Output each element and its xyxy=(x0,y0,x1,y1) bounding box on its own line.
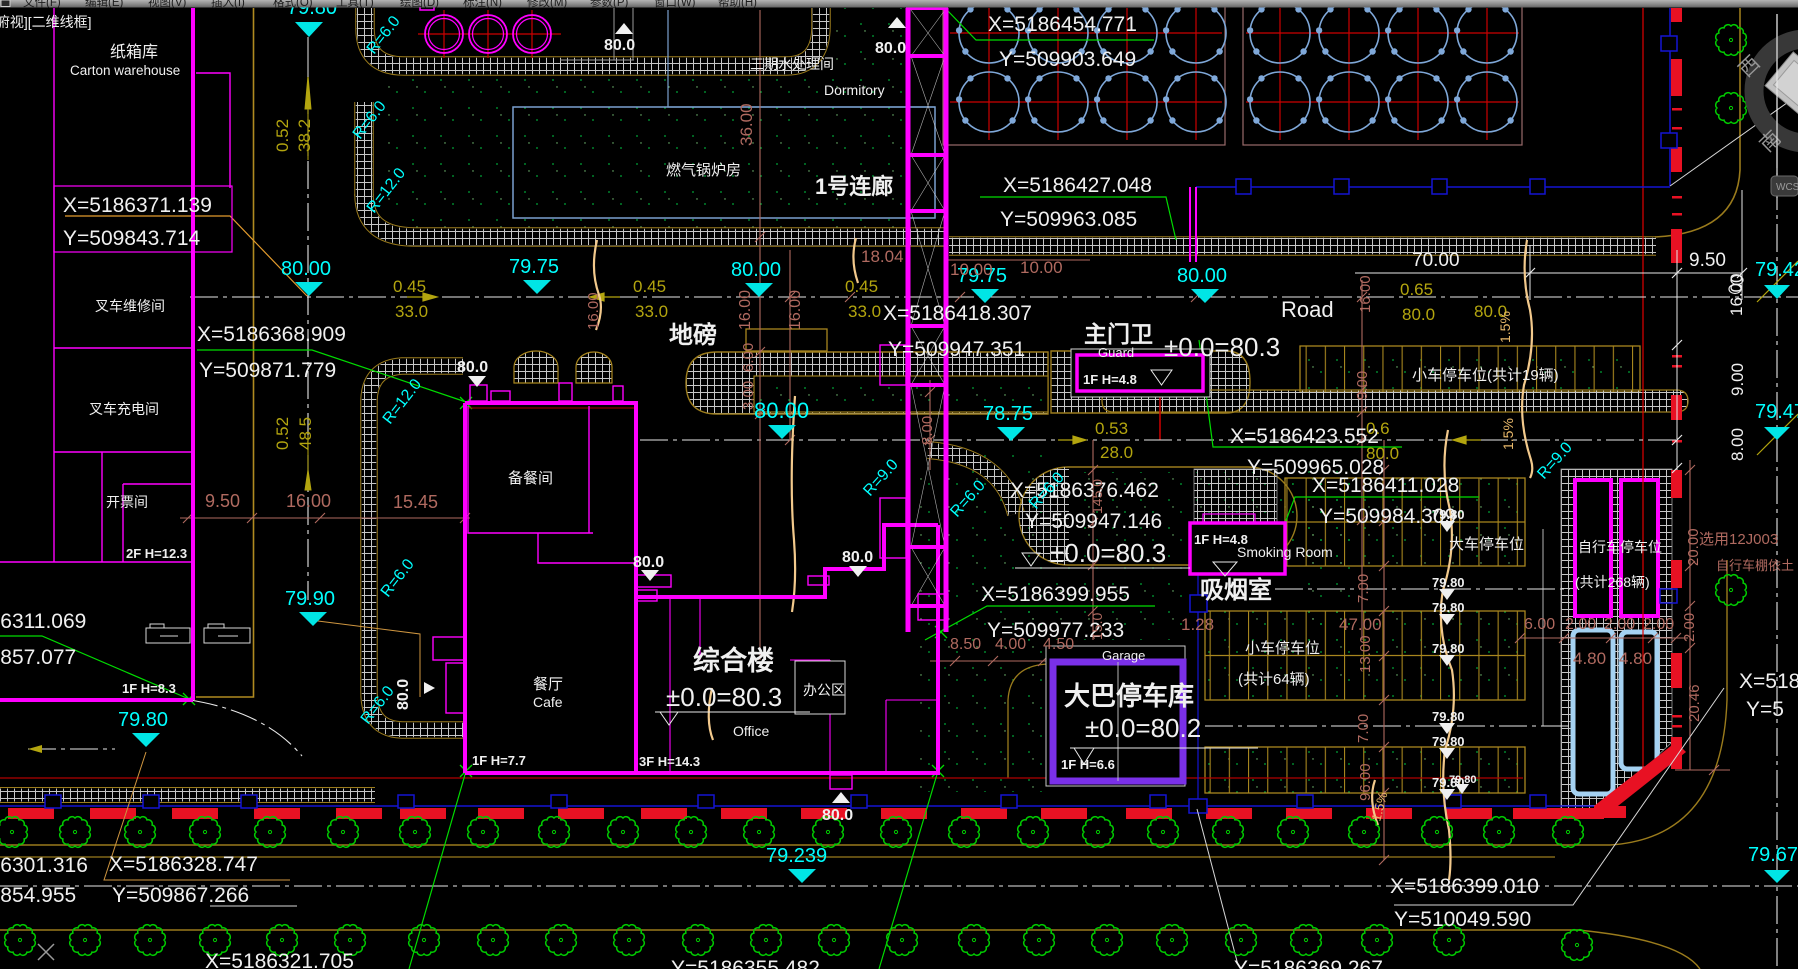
svg-text:Y=5: Y=5 xyxy=(1746,698,1784,721)
svg-text:7.00: 7.00 xyxy=(1355,574,1372,603)
svg-text:3F H=14.3: 3F H=14.3 xyxy=(639,754,700,769)
svg-text:±0.0=80.2: ±0.0=80.2 xyxy=(1085,713,1201,743)
svg-text:1F H=8.3: 1F H=8.3 xyxy=(122,681,176,696)
svg-text:自行车停车位: 自行车停车位 xyxy=(1578,539,1662,555)
svg-text:Y=509857.077: Y=509857.077 xyxy=(0,646,76,669)
svg-text:X=5186399.010: X=5186399.010 xyxy=(1390,875,1539,898)
svg-text:0.52: 0.52 xyxy=(273,417,292,450)
svg-text:48.5: 48.5 xyxy=(296,417,315,450)
svg-text:80.0: 80.0 xyxy=(1366,444,1399,463)
svg-text:(共计268辆): (共计268辆) xyxy=(1575,574,1650,590)
svg-text:X=5186301.316: X=5186301.316 xyxy=(0,854,88,877)
svg-text:80.0: 80.0 xyxy=(1402,305,1435,324)
svg-text:Y=510049.590: Y=510049.590 xyxy=(1394,908,1531,931)
svg-text:Y=509854.955: Y=509854.955 xyxy=(0,884,76,907)
svg-text:80.00: 80.00 xyxy=(754,398,809,423)
svg-text:小车停车位(共计19辆): 小车停车位(共计19辆) xyxy=(1412,367,1559,384)
svg-text:80.0: 80.0 xyxy=(822,807,853,824)
svg-text:79.90: 79.90 xyxy=(285,588,335,610)
svg-text:[俯视][二维线框]: [俯视][二维线框] xyxy=(0,14,92,30)
svg-text:16.00: 16.00 xyxy=(286,491,331,511)
svg-text:80.00: 80.00 xyxy=(731,259,781,281)
svg-text:20.00: 20.00 xyxy=(1685,528,1702,566)
svg-text:10.00: 10.00 xyxy=(950,260,993,279)
svg-text:2.00: 2.00 xyxy=(1643,616,1674,633)
svg-text:WCS: WCS xyxy=(1776,182,1798,193)
svg-text:大车停车位: 大车停车位 xyxy=(1449,536,1524,553)
svg-text:47.00: 47.00 xyxy=(1339,615,1382,634)
svg-text:±0.0=80.3: ±0.0=80.3 xyxy=(1050,538,1166,568)
svg-text:80.0: 80.0 xyxy=(604,37,635,54)
svg-text:80.0: 80.0 xyxy=(395,679,412,710)
svg-text:1.5%: 1.5% xyxy=(1497,311,1513,343)
svg-text:15.45: 15.45 xyxy=(393,492,438,512)
svg-text:79.239: 79.239 xyxy=(766,845,827,867)
svg-text:X=5186411.028: X=5186411.028 xyxy=(1312,474,1459,497)
svg-text:18.04: 18.04 xyxy=(861,247,904,266)
svg-text:0.53: 0.53 xyxy=(1095,419,1128,438)
svg-text:1F H=4.8: 1F H=4.8 xyxy=(1083,372,1137,387)
svg-text:三期水处理间: 三期水处理间 xyxy=(750,56,834,72)
svg-text:±0.0=80.3: ±0.0=80.3 xyxy=(1164,332,1280,362)
svg-text:36.00: 36.00 xyxy=(737,103,756,146)
svg-text:Road: Road xyxy=(1281,297,1334,322)
svg-text:Y=5186369.267: Y=5186369.267 xyxy=(1234,957,1383,969)
svg-text:Smoking Room: Smoking Room xyxy=(1237,544,1333,560)
svg-text:80.00: 80.00 xyxy=(281,258,331,280)
svg-text:79.80: 79.80 xyxy=(1432,734,1465,749)
svg-text:备餐间: 备餐间 xyxy=(508,470,553,487)
svg-text:0.45: 0.45 xyxy=(393,277,426,296)
svg-text:大巴停车库: 大巴停车库 xyxy=(1064,681,1194,711)
svg-text:4.00: 4.00 xyxy=(995,636,1026,653)
svg-text:1号连廊: 1号连廊 xyxy=(815,174,893,199)
svg-text:Y=509903.649: Y=509903.649 xyxy=(999,48,1136,71)
svg-text:20.46: 20.46 xyxy=(1686,684,1703,722)
svg-text:办公区: 办公区 xyxy=(803,682,845,698)
svg-text:16.00: 16.00 xyxy=(1727,273,1746,316)
svg-text:4.80: 4.80 xyxy=(1573,649,1606,668)
svg-text:28.0: 28.0 xyxy=(1100,443,1133,462)
svg-text:X=5186371.139: X=5186371.139 xyxy=(63,194,212,217)
svg-text:8.00: 8.00 xyxy=(1728,428,1747,461)
svg-text:145.0: 145.0 xyxy=(1089,479,1105,514)
svg-text:地磅: 地磅 xyxy=(669,321,717,349)
svg-text:79.75: 79.75 xyxy=(509,256,559,278)
svg-text:80.0: 80.0 xyxy=(457,359,488,376)
svg-text:X=5186454.771: X=5186454.771 xyxy=(988,13,1137,36)
svg-text:80.0: 80.0 xyxy=(875,40,906,57)
svg-text:1.5%: 1.5% xyxy=(1500,418,1516,450)
svg-text:4.80: 4.80 xyxy=(1619,649,1652,668)
svg-text:6.00: 6.00 xyxy=(740,343,757,372)
svg-text:4.50: 4.50 xyxy=(1043,636,1074,653)
svg-text:Carton warehouse: Carton warehouse xyxy=(70,63,180,78)
svg-text:80.0: 80.0 xyxy=(842,549,873,566)
svg-text:79.67: 79.67 xyxy=(1748,844,1798,866)
svg-text:Dormitory: Dormitory xyxy=(824,82,885,98)
svg-text:(共计64辆): (共计64辆) xyxy=(1238,671,1310,688)
svg-text:Guard: Guard xyxy=(1098,345,1134,360)
svg-text:Y=509867.266: Y=509867.266 xyxy=(112,884,249,907)
svg-text:X=5186328.747: X=5186328.747 xyxy=(109,853,258,876)
svg-text:1F H=7.7: 1F H=7.7 xyxy=(472,753,526,768)
svg-text:79.80: 79.80 xyxy=(1432,575,1465,590)
svg-text:燃气锅炉房: 燃气锅炉房 xyxy=(666,161,741,179)
svg-text:X=5186423.552: X=5186423.552 xyxy=(1230,425,1379,448)
svg-text:79.47: 79.47 xyxy=(1755,401,1798,423)
svg-text:2F H=12.3: 2F H=12.3 xyxy=(126,546,187,561)
svg-text:0.45: 0.45 xyxy=(633,277,666,296)
svg-text:6.00: 6.00 xyxy=(1524,616,1555,633)
svg-text:纸箱库: 纸箱库 xyxy=(110,43,158,61)
svg-text:X=5186311.069: X=5186311.069 xyxy=(0,610,86,633)
svg-text:X=5186368.909: X=5186368.909 xyxy=(197,323,346,346)
svg-text:79.80: 79.80 xyxy=(1432,600,1465,615)
svg-text:7.00: 7.00 xyxy=(1355,714,1372,743)
svg-text:Y=509963.085: Y=509963.085 xyxy=(1000,208,1137,231)
svg-text:8.00: 8.00 xyxy=(919,416,936,445)
svg-text:0.65: 0.65 xyxy=(1400,280,1433,299)
svg-text:33.0: 33.0 xyxy=(635,302,668,321)
svg-text:X=5186399.955: X=5186399.955 xyxy=(981,583,1130,606)
svg-text:X=5186321.705: X=5186321.705 xyxy=(205,950,354,969)
svg-text:主门卫: 主门卫 xyxy=(1084,321,1153,347)
svg-text:79.80: 79.80 xyxy=(1432,709,1465,724)
svg-text:96.00: 96.00 xyxy=(1357,763,1374,801)
svg-text:叉车充电间: 叉车充电间 xyxy=(89,401,159,417)
svg-text:Y=509871.779: Y=509871.779 xyxy=(199,359,336,382)
svg-text:70.00: 70.00 xyxy=(1412,250,1460,271)
svg-text:38.2: 38.2 xyxy=(295,119,314,152)
svg-text:2.00: 2.00 xyxy=(1565,616,1596,633)
svg-text:Garage: Garage xyxy=(1102,648,1145,663)
svg-text:Y=5186355.482: Y=5186355.482 xyxy=(671,957,820,969)
svg-text:吸烟室: 吸烟室 xyxy=(1200,576,1272,604)
svg-text:80.00: 80.00 xyxy=(1177,265,1227,287)
svg-text:1F H=6.6: 1F H=6.6 xyxy=(1061,757,1115,772)
svg-text:8.50: 8.50 xyxy=(950,636,981,653)
svg-text:10.00: 10.00 xyxy=(1020,258,1063,277)
svg-text:9.50: 9.50 xyxy=(1689,250,1726,271)
svg-text:2.00: 2.00 xyxy=(1604,616,1635,633)
svg-text:16.00: 16.00 xyxy=(585,292,602,330)
svg-text:0.52: 0.52 xyxy=(273,119,292,152)
svg-text:79.80: 79.80 xyxy=(118,709,168,731)
svg-text:16.00: 16.00 xyxy=(787,290,804,330)
svg-text:自行车棚依土: 自行车棚依土 xyxy=(1716,558,1794,573)
svg-text:开票间: 开票间 xyxy=(106,494,148,510)
svg-text:±0.0=80.3: ±0.0=80.3 xyxy=(666,682,782,712)
svg-text:9.00: 9.00 xyxy=(1728,363,1747,396)
svg-text:16.00: 16.00 xyxy=(737,290,754,330)
svg-text:9.50: 9.50 xyxy=(205,491,240,511)
svg-text:X=5186418.307: X=5186418.307 xyxy=(883,302,1032,325)
svg-text:2.00: 2.00 xyxy=(1681,613,1698,642)
svg-text:33.0: 33.0 xyxy=(395,302,428,321)
svg-text:Y=509843.714: Y=509843.714 xyxy=(63,227,201,250)
svg-text:15.0: 15.0 xyxy=(1089,613,1105,640)
svg-text:13.00: 13.00 xyxy=(1357,635,1374,673)
svg-text:Cafe: Cafe xyxy=(533,694,563,710)
svg-text:79.80: 79.80 xyxy=(1432,641,1465,656)
svg-text:0.6: 0.6 xyxy=(1366,419,1390,438)
svg-text:9.00: 9.00 xyxy=(1354,371,1371,400)
svg-text:3.00: 3.00 xyxy=(740,381,757,410)
svg-text:选用12J003: 选用12J003 xyxy=(1699,531,1778,548)
svg-text:Office: Office xyxy=(733,723,770,739)
svg-text:79.42: 79.42 xyxy=(1755,259,1798,281)
svg-text:78.75: 78.75 xyxy=(983,403,1033,425)
svg-text:16.00: 16.00 xyxy=(1357,275,1374,313)
svg-text:综合楼: 综合楼 xyxy=(693,645,774,676)
svg-text:0.45: 0.45 xyxy=(845,277,878,296)
svg-text:80.0: 80.0 xyxy=(633,554,664,571)
svg-text:小车停车位: 小车停车位 xyxy=(1245,640,1320,657)
svg-text:X=5186427.048: X=5186427.048 xyxy=(1003,174,1152,197)
svg-text:33.0: 33.0 xyxy=(848,302,881,321)
svg-text:1.28: 1.28 xyxy=(1181,615,1214,634)
svg-text:餐厅: 餐厅 xyxy=(533,676,563,693)
svg-text:叉车维修间: 叉车维修间 xyxy=(95,298,165,314)
svg-text:Y=509947.351: Y=509947.351 xyxy=(888,338,1025,361)
svg-text:X=518: X=518 xyxy=(1739,670,1798,693)
svg-text:Y=509984.309: Y=509984.309 xyxy=(1319,505,1456,528)
